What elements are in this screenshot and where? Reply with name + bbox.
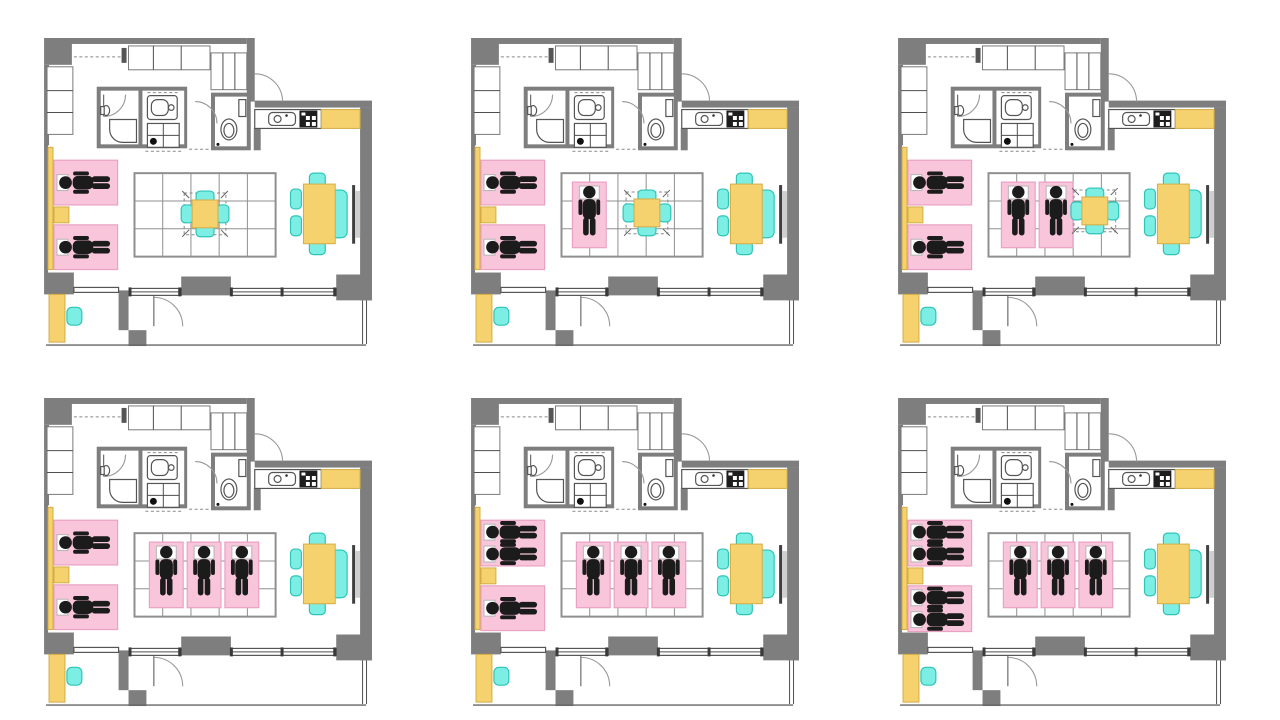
futon [614,542,648,608]
bed [481,225,545,270]
futon [1003,542,1037,608]
futon [1001,182,1035,248]
floor-plan-plan-4 [44,398,382,716]
floor-plan-cell-plan-3 [853,0,1280,360]
low-table-set [623,190,671,236]
bed [54,520,118,565]
bed [54,585,118,630]
nightstand [908,568,923,584]
low-table-set [1071,188,1119,234]
floor-plan-grid [0,0,1280,720]
futon [572,182,606,248]
bed [481,586,545,631]
bed [481,160,545,205]
floor-plan-cell-plan-6 [853,360,1280,720]
bed [908,160,972,205]
floor-plan-plan-6 [898,398,1236,716]
futon [576,542,610,608]
futon [187,542,221,608]
nightstand [908,207,923,223]
nightstand [481,207,496,223]
floor-plan-plan-5 [471,398,809,716]
floor-plan-plan-3 [898,38,1236,356]
bed [481,520,545,566]
floor-plan-plan-2 [471,38,809,356]
bed [54,160,118,205]
bed [54,225,118,270]
nightstand [54,567,69,583]
floor-plan-cell-plan-5 [427,360,854,720]
floor-plan-cell-plan-4 [0,360,427,720]
low-table-set [182,191,230,237]
floor-plan-plan-1 [44,38,382,356]
futon [652,542,686,608]
futon [1041,542,1075,608]
nightstand [54,207,69,223]
futon [1039,182,1073,248]
bed [908,225,972,270]
futon [225,542,259,608]
futon [150,542,184,608]
bed [908,586,972,632]
futon [1079,542,1113,608]
floor-plan-cell-plan-2 [427,0,854,360]
nightstand [481,568,496,584]
bed [908,520,972,566]
floor-plan-cell-plan-1 [0,0,427,360]
